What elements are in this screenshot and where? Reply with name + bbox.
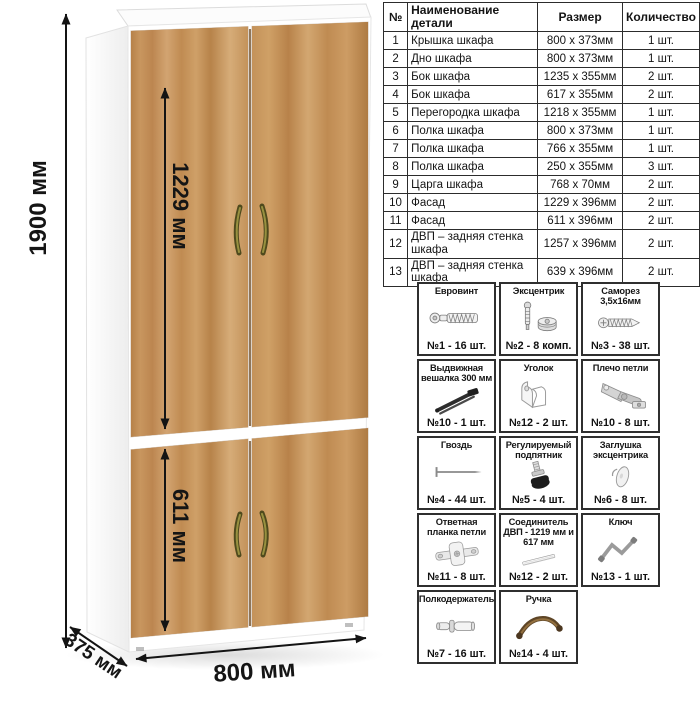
part-qty: 1 шт. bbox=[623, 32, 700, 50]
part-qty: 3 шт. bbox=[623, 158, 700, 176]
hardware-cell: Полкодержатель №7 - 16 шт. bbox=[417, 590, 496, 664]
part-size: 1235 х 355мм bbox=[538, 68, 623, 86]
table-row: 11 Фасад 611 х 396мм 2 шт. bbox=[384, 212, 700, 230]
part-qty: 1 шт. bbox=[623, 140, 700, 158]
parts-table-body: 1 Крышка шкафа 800 х 373мм 1 шт. 2 Дно ш… bbox=[384, 32, 700, 287]
corner-bracket-icon bbox=[502, 373, 575, 417]
part-qty: 2 шт. bbox=[623, 230, 700, 258]
part-name: Крышка шкафа bbox=[408, 32, 538, 50]
hardware-count: №2 - 8 комп. bbox=[506, 340, 572, 352]
parts-table: № Наименование детали Размер Количество … bbox=[383, 2, 700, 287]
hardware-title: Ручка bbox=[526, 594, 552, 604]
hardware-count: №7 - 16 шт. bbox=[427, 648, 486, 660]
table-row: 3 Бок шкафа 1235 х 355мм 2 шт. bbox=[384, 68, 700, 86]
hardware-title: Ответная планка петли bbox=[420, 517, 493, 537]
hardware-title: Регулируемый подпятник bbox=[502, 440, 575, 460]
part-qty: 1 шт. bbox=[623, 104, 700, 122]
hardware-count: №5 - 4 шт. bbox=[512, 494, 565, 506]
wardrobe-figure: 1900 мм 1229 мм 611 мм 800 мм 375 мм bbox=[0, 0, 420, 700]
hardware-cell: Регулируемый подпятник №5 - 4 шт. bbox=[499, 436, 578, 510]
hardware-count: №12 - 2 шт. bbox=[509, 417, 568, 429]
hardware-count: №4 - 44 шт. bbox=[427, 494, 486, 506]
door-handle-icon bbox=[502, 604, 575, 648]
cam-lock-icon bbox=[502, 296, 575, 340]
part-number: 9 bbox=[384, 176, 408, 194]
part-size: 768 х 70мм bbox=[538, 176, 623, 194]
adjustable-foot-icon bbox=[502, 460, 575, 494]
part-size: 766 х 355мм bbox=[538, 140, 623, 158]
part-name: Бок шкафа bbox=[408, 86, 538, 104]
hardware-count: №11 - 8 шт. bbox=[427, 571, 485, 583]
hardware-cell: Плечо петли №10 - 8 шт. bbox=[581, 359, 660, 433]
hardware-count: №3 - 38 шт. bbox=[591, 340, 650, 352]
part-number: 7 bbox=[384, 140, 408, 158]
part-qty: 2 шт. bbox=[623, 176, 700, 194]
lower-doors-dimension-label: 611 мм bbox=[168, 489, 193, 563]
part-name: Перегородка шкафа bbox=[408, 104, 538, 122]
hardware-count: №10 - 8 шт. bbox=[591, 417, 650, 429]
hardware-cell: Выдвижная вешалка 300 мм №10 - 1 шт. bbox=[417, 359, 496, 433]
part-size: 800 х 373мм bbox=[538, 122, 623, 140]
hardware-cell: Евровинт №1 - 16 шт. bbox=[417, 282, 496, 356]
hardware-title: Плечо петли bbox=[593, 363, 649, 373]
cam-cover-icon bbox=[584, 460, 657, 494]
part-qty: 2 шт. bbox=[623, 194, 700, 212]
table-row: 5 Перегородка шкафа 1218 х 355мм 1 шт. bbox=[384, 104, 700, 122]
part-qty: 2 шт. bbox=[623, 212, 700, 230]
hinge-arm-icon bbox=[584, 373, 657, 417]
part-name: Бок шкафа bbox=[408, 68, 538, 86]
part-number: 12 bbox=[384, 230, 408, 258]
hardware-title: Евровинт bbox=[435, 286, 478, 296]
hardware-title: Ключ bbox=[609, 517, 633, 527]
part-number: 8 bbox=[384, 158, 408, 176]
part-name: Дно шкафа bbox=[408, 50, 538, 68]
hardware-title: Эксцентрик bbox=[513, 286, 564, 296]
part-name: Полка шкафа bbox=[408, 122, 538, 140]
hardware-title: Соединитель ДВП - 1219 мм и 617 мм bbox=[502, 517, 575, 548]
right-foot bbox=[345, 623, 353, 627]
header-name: Наименование детали bbox=[408, 3, 538, 32]
hardware-count: №1 - 16 шт. bbox=[427, 340, 486, 352]
part-number: 6 bbox=[384, 122, 408, 140]
hex-key-icon bbox=[584, 527, 657, 571]
hdf-connector-icon bbox=[502, 548, 575, 571]
table-row: 4 Бок шкафа 617 х 355мм 2 шт. bbox=[384, 86, 700, 104]
width-dimension-label: 800 мм bbox=[213, 655, 297, 688]
part-number: 3 bbox=[384, 68, 408, 86]
hardware-count: №14 - 4 шт. bbox=[509, 648, 568, 660]
part-size: 1257 х 396мм bbox=[538, 230, 623, 258]
hardware-title: Заглушка эксцентрика bbox=[584, 440, 657, 460]
part-qty: 1 шт. bbox=[623, 50, 700, 68]
pull-out-hanger-icon bbox=[420, 383, 493, 417]
table-row: 10 Фасад 1229 х 396мм 2 шт. bbox=[384, 194, 700, 212]
part-name: Царга шкафа bbox=[408, 176, 538, 194]
table-row: 6 Полка шкафа 800 х 373мм 1 шт. bbox=[384, 122, 700, 140]
part-size: 800 х 373мм bbox=[538, 50, 623, 68]
hardware-title: Полкодержатель bbox=[419, 594, 494, 604]
hardware-cell: Гвоздь №4 - 44 шт. bbox=[417, 436, 496, 510]
small-screw-icon bbox=[584, 306, 657, 340]
part-size: 611 х 396мм bbox=[538, 212, 623, 230]
hardware-cell: Ключ №13 - 1 шт. bbox=[581, 513, 660, 587]
header-qty: Количество bbox=[623, 3, 700, 32]
part-size: 617 х 355мм bbox=[538, 86, 623, 104]
part-qty: 1 шт. bbox=[623, 122, 700, 140]
part-number: 4 bbox=[384, 86, 408, 104]
hardware-cell: Ручка №14 - 4 шт. bbox=[499, 590, 578, 664]
part-size: 250 х 355мм bbox=[538, 158, 623, 176]
header-size: Размер bbox=[538, 3, 623, 32]
left-foot bbox=[136, 647, 144, 651]
euro-screw-icon bbox=[420, 296, 493, 340]
hardware-grid: Евровинт №1 - 16 шт. Эксцентрик №2 - 8 к… bbox=[417, 282, 663, 664]
part-qty: 2 шт. bbox=[623, 68, 700, 86]
part-name: ДВП – задняя стенка шкафа bbox=[408, 230, 538, 258]
hardware-count: №12 - 2 шт. bbox=[509, 571, 568, 583]
parts-table-header-row: № Наименование детали Размер Количество bbox=[384, 3, 700, 32]
hinge-plate-icon bbox=[420, 537, 493, 571]
hardware-cell: Эксцентрик №2 - 8 комп. bbox=[499, 282, 578, 356]
wardrobe-drawing: 1900 мм 1229 мм 611 мм 800 мм 375 мм bbox=[0, 0, 420, 700]
part-name: Полка шкафа bbox=[408, 140, 538, 158]
part-name: Фасад bbox=[408, 194, 538, 212]
hardware-count: №10 - 1 шт. bbox=[427, 417, 486, 429]
hardware-title: Уголок bbox=[524, 363, 554, 373]
part-size: 1229 х 396мм bbox=[538, 194, 623, 212]
height-dimension-label: 1900 мм bbox=[25, 160, 52, 256]
part-name: Полка шкафа bbox=[408, 158, 538, 176]
hardware-title: Гвоздь bbox=[441, 440, 472, 450]
table-row: 9 Царга шкафа 768 х 70мм 2 шт. bbox=[384, 176, 700, 194]
part-number: 5 bbox=[384, 104, 408, 122]
hardware-count: №6 - 8 шт. bbox=[594, 494, 647, 506]
header-num: № bbox=[384, 3, 408, 32]
table-row: 2 Дно шкафа 800 х 373мм 1 шт. bbox=[384, 50, 700, 68]
part-size: 1218 х 355мм bbox=[538, 104, 623, 122]
table-row: 7 Полка шкафа 766 х 355мм 1 шт. bbox=[384, 140, 700, 158]
part-number: 11 bbox=[384, 212, 408, 230]
part-name: Фасад bbox=[408, 212, 538, 230]
part-qty: 2 шт. bbox=[623, 86, 700, 104]
hardware-cell: Уголок №12 - 2 шт. bbox=[499, 359, 578, 433]
hardware-cell: Соединитель ДВП - 1219 мм и 617 мм №12 -… bbox=[499, 513, 578, 587]
hardware-title: Саморез 3,5х16мм bbox=[584, 286, 657, 306]
hardware-cell: Ответная планка петли №11 - 8 шт. bbox=[417, 513, 496, 587]
cabinet-side-panel bbox=[86, 26, 129, 652]
table-row: 12 ДВП – задняя стенка шкафа 1257 х 396м… bbox=[384, 230, 700, 258]
table-row: 8 Полка шкафа 250 х 355мм 3 шт. bbox=[384, 158, 700, 176]
part-size: 800 х 373мм bbox=[538, 32, 623, 50]
upper-doors-dimension-label: 1229 мм bbox=[168, 162, 193, 250]
table-row: 1 Крышка шкафа 800 х 373мм 1 шт. bbox=[384, 32, 700, 50]
hardware-title: Выдвижная вешалка 300 мм bbox=[420, 363, 493, 383]
part-number: 2 bbox=[384, 50, 408, 68]
shelf-pin-icon bbox=[420, 604, 493, 648]
hardware-cell: Саморез 3,5х16мм №3 - 38 шт. bbox=[581, 282, 660, 356]
part-number: 10 bbox=[384, 194, 408, 212]
part-number: 1 bbox=[384, 32, 408, 50]
hardware-count: №13 - 1 шт. bbox=[591, 571, 650, 583]
nail-icon bbox=[420, 450, 493, 494]
hardware-cell: Заглушка эксцентрика №6 - 8 шт. bbox=[581, 436, 660, 510]
part-number: 13 bbox=[384, 258, 408, 286]
